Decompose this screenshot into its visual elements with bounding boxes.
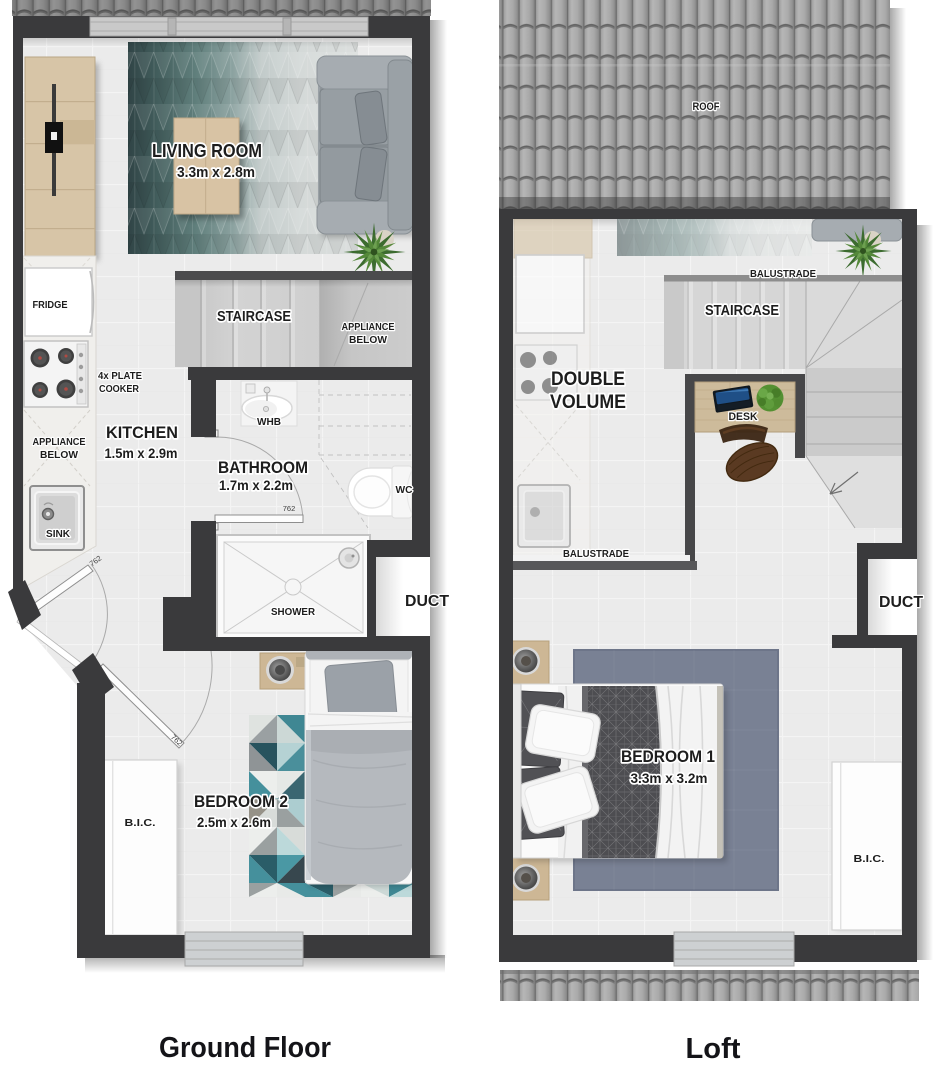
svg-text:WHB: WHB xyxy=(257,417,281,428)
svg-text:COOKER: COOKER xyxy=(99,383,139,395)
svg-text:B.I.C.: B.I.C. xyxy=(125,817,156,829)
svg-text:BALUSTRADE: BALUSTRADE xyxy=(750,268,816,280)
svg-text:BALUSTRADE: BALUSTRADE xyxy=(563,548,629,560)
svg-text:BELOW: BELOW xyxy=(349,334,387,346)
svg-text:WC: WC xyxy=(396,485,413,496)
svg-text:VOLUME: VOLUME xyxy=(550,392,626,413)
svg-text:SINK: SINK xyxy=(46,529,71,540)
svg-text:B.I.C.: B.I.C. xyxy=(854,853,885,865)
svg-text:4x PLATE: 4x PLATE xyxy=(98,370,142,382)
svg-text:2.5m x 2.6m: 2.5m x 2.6m xyxy=(197,814,271,830)
svg-text:STAIRCASE: STAIRCASE xyxy=(705,302,779,319)
svg-text:3.3m x 2.8m: 3.3m x 2.8m xyxy=(177,164,255,181)
svg-text:DUCT: DUCT xyxy=(879,594,923,611)
svg-text:APPLIANCE: APPLIANCE xyxy=(342,321,395,333)
svg-text:SHOWER: SHOWER xyxy=(271,606,315,618)
svg-text:BATHROOM: BATHROOM xyxy=(218,458,308,477)
svg-text:BEDROOM 2: BEDROOM 2 xyxy=(194,792,288,811)
svg-text:KITCHEN: KITCHEN xyxy=(106,423,178,442)
svg-text:FRIDGE: FRIDGE xyxy=(33,300,68,311)
svg-text:1.5m x 2.9m: 1.5m x 2.9m xyxy=(105,445,178,461)
svg-text:DOUBLE: DOUBLE xyxy=(551,369,625,390)
svg-text:BEDROOM 1: BEDROOM 1 xyxy=(621,747,715,766)
svg-text:Loft: Loft xyxy=(686,1033,741,1065)
svg-text:DUCT: DUCT xyxy=(405,593,449,610)
svg-text:Ground Floor: Ground Floor xyxy=(159,1032,331,1064)
svg-text:BELOW: BELOW xyxy=(40,449,78,461)
svg-text:1.7m x 2.2m: 1.7m x 2.2m xyxy=(219,477,293,493)
svg-text:3.3m x 3.2m: 3.3m x 3.2m xyxy=(631,770,708,786)
svg-text:ROOF: ROOF xyxy=(693,101,720,113)
svg-text:DESK: DESK xyxy=(729,411,758,423)
svg-text:STAIRCASE: STAIRCASE xyxy=(217,308,291,325)
svg-text:LIVING ROOM: LIVING ROOM xyxy=(152,141,262,161)
svg-text:762: 762 xyxy=(283,504,296,513)
svg-text:APPLIANCE: APPLIANCE xyxy=(33,436,86,448)
